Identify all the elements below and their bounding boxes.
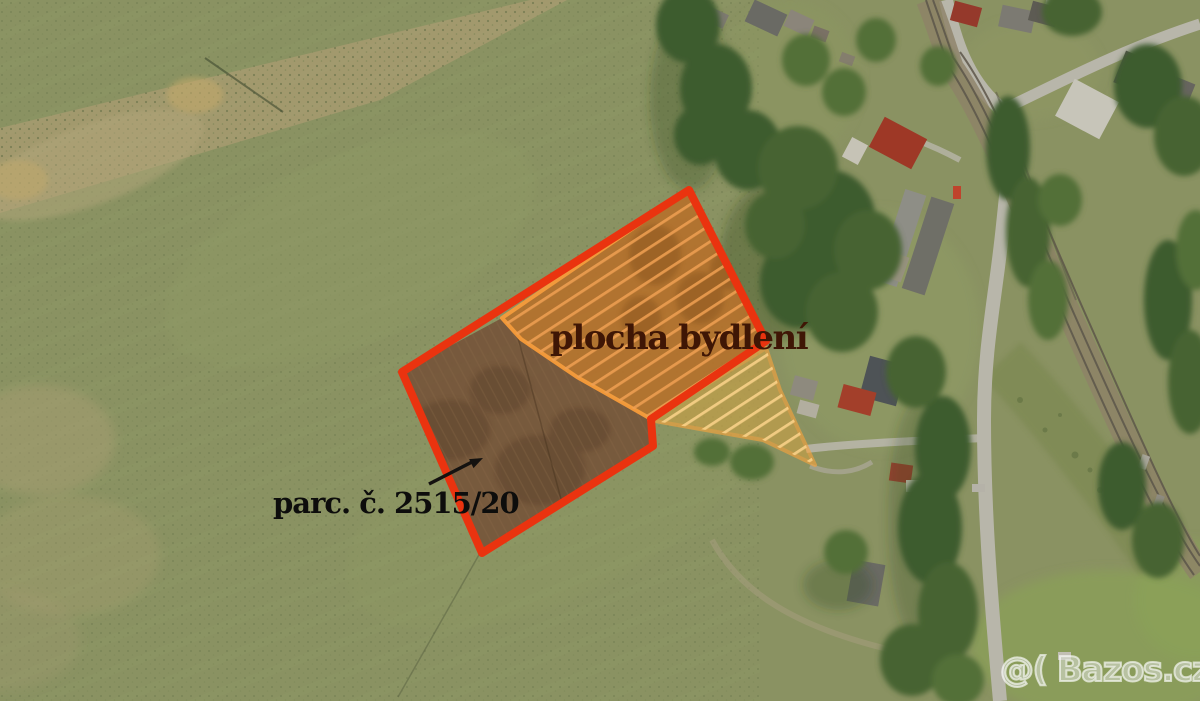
aerial-listing-image: plocha bydlení parc. č. 2515/20 @( Bazos…	[0, 0, 1200, 701]
aerial-photo-canvas	[0, 0, 1200, 701]
